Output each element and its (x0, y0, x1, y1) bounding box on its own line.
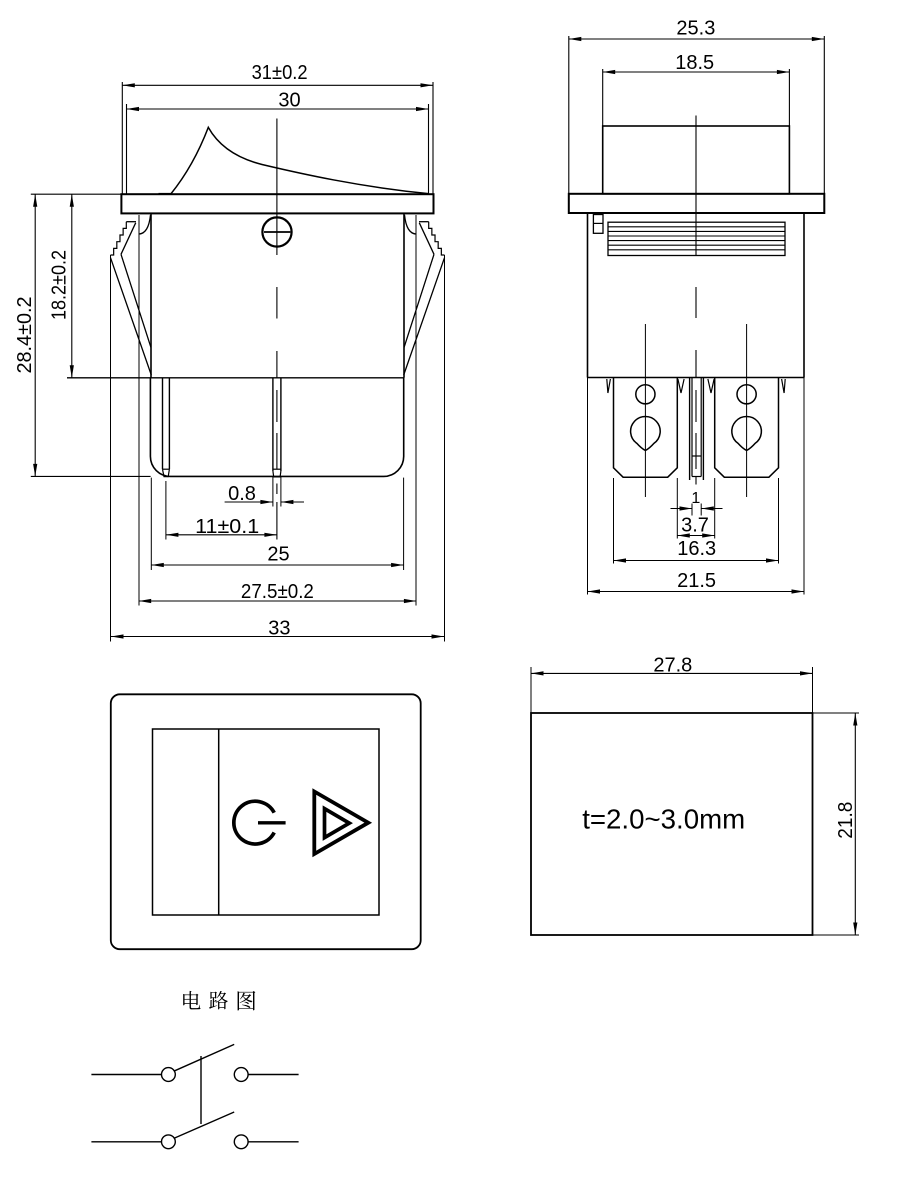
svg-text:1: 1 (691, 490, 700, 507)
svg-text:31±0.2: 31±0.2 (252, 62, 308, 84)
svg-text:30: 30 (278, 90, 300, 112)
svg-text:25.3: 25.3 (676, 18, 715, 40)
svg-text:18.5: 18.5 (675, 52, 714, 74)
svg-text:18.2±0.2: 18.2±0.2 (49, 250, 71, 320)
svg-text:21.8: 21.8 (835, 802, 857, 839)
svg-text:16.3: 16.3 (677, 538, 716, 560)
svg-text:27.5±0.2: 27.5±0.2 (241, 581, 314, 603)
svg-text:28.4±0.2: 28.4±0.2 (14, 297, 36, 374)
svg-text:3.7: 3.7 (681, 515, 709, 537)
svg-text:t=2.0~3.0mm: t=2.0~3.0mm (582, 804, 745, 835)
svg-text:21.5: 21.5 (677, 570, 716, 592)
svg-text:25: 25 (267, 544, 289, 566)
